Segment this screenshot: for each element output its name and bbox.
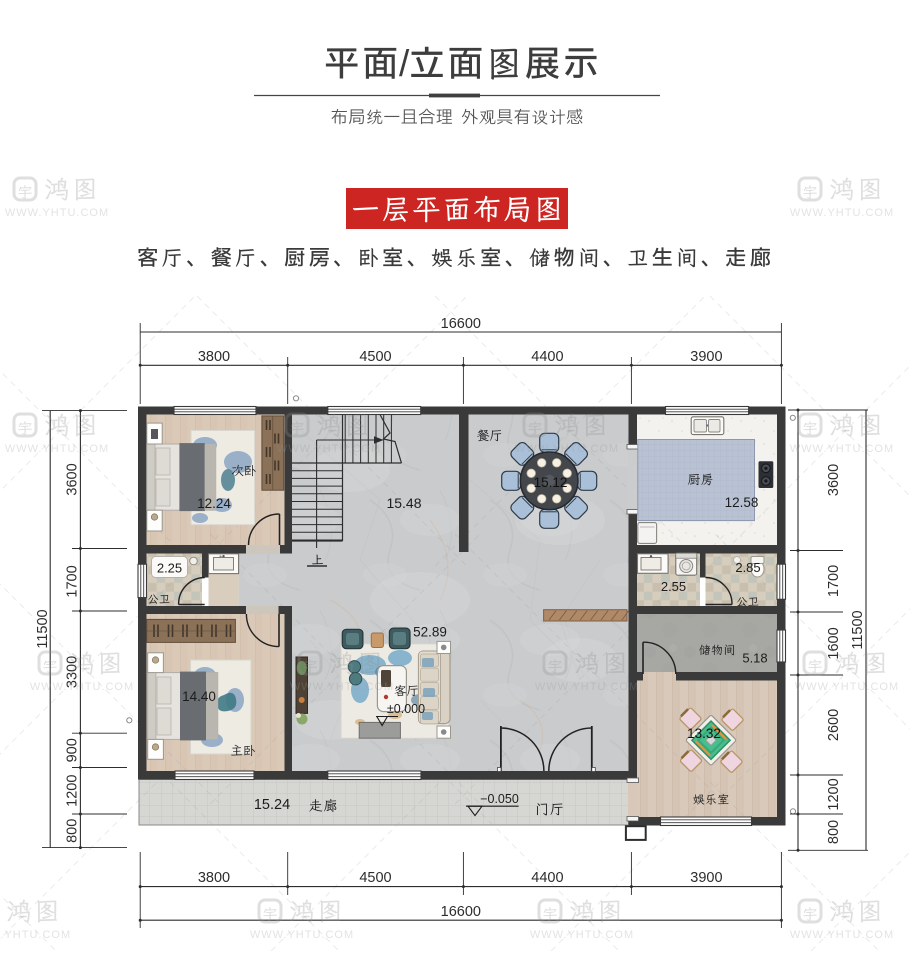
svg-text:5.18: 5.18 (742, 651, 767, 666)
svg-text:1700: 1700 (65, 565, 81, 597)
svg-text:3600: 3600 (65, 463, 81, 495)
svg-text:/: / (399, 43, 410, 84)
svg-text:WWW.YHTU.COM: WWW.YHTU.COM (250, 929, 354, 941)
svg-text:3900: 3900 (690, 349, 722, 365)
svg-text:13.32: 13.32 (687, 726, 721, 741)
svg-text:WWW.YHTU.COM: WWW.YHTU.COM (535, 681, 639, 693)
svg-text:4500: 4500 (359, 349, 391, 365)
svg-text:11500: 11500 (35, 609, 51, 648)
svg-text:WWW.YHTU.COM: WWW.YHTU.COM (790, 929, 894, 941)
svg-text:WWW.YHTU.COM: WWW.YHTU.COM (790, 207, 894, 219)
svg-text:±0.000: ±0.000 (387, 702, 425, 716)
svg-text:WWW.YHTU.COM: WWW.YHTU.COM (530, 929, 634, 941)
svg-text:14.40: 14.40 (182, 689, 216, 704)
svg-text:2.85: 2.85 (735, 560, 760, 575)
svg-text:11500: 11500 (850, 610, 866, 649)
svg-text:WWW.YHTU.COM: WWW.YHTU.COM (5, 207, 109, 219)
svg-text:−0.050: −0.050 (480, 792, 519, 806)
svg-text:WWW.YHTU.COM: WWW.YHTU.COM (30, 681, 134, 693)
svg-text:12.24: 12.24 (197, 496, 231, 511)
svg-text:900: 900 (65, 738, 81, 762)
svg-text:WWW.YHTU.COM: WWW.YHTU.COM (795, 681, 899, 693)
svg-text:15.24: 15.24 (254, 797, 290, 813)
svg-text:3800: 3800 (198, 349, 230, 365)
svg-text:2.25: 2.25 (157, 561, 182, 576)
svg-text:WWW.YHTU.COM: WWW.YHTU.COM (515, 443, 619, 455)
svg-text:4400: 4400 (531, 349, 563, 365)
svg-text:WWW.YHTU.COM: WWW.YHTU.COM (5, 443, 109, 455)
svg-text:WWW.YHTU.COM: WWW.YHTU.COM (290, 681, 394, 693)
svg-text:52.89: 52.89 (413, 625, 447, 640)
svg-text:2.55: 2.55 (661, 579, 686, 594)
svg-text:2600: 2600 (826, 709, 842, 741)
svg-text:16600: 16600 (441, 316, 481, 332)
svg-text:15.12: 15.12 (534, 475, 568, 490)
svg-text:1200: 1200 (65, 775, 81, 807)
svg-text:1200: 1200 (826, 778, 842, 810)
svg-text:WWW.YHTU.COM: WWW.YHTU.COM (0, 929, 71, 941)
svg-text:1700: 1700 (826, 565, 842, 597)
svg-text:WWW.YHTU.COM: WWW.YHTU.COM (277, 443, 381, 455)
svg-text:4400: 4400 (531, 870, 563, 886)
svg-text:3800: 3800 (198, 870, 230, 886)
svg-text:800: 800 (65, 819, 81, 843)
svg-text:WWW.YHTU.COM: WWW.YHTU.COM (790, 443, 894, 455)
svg-text:12.58: 12.58 (725, 495, 759, 510)
svg-text:16600: 16600 (441, 904, 481, 920)
svg-text:800: 800 (826, 820, 842, 844)
svg-text:3600: 3600 (826, 464, 842, 496)
svg-text:3900: 3900 (690, 870, 722, 886)
svg-text:15.48: 15.48 (386, 495, 421, 511)
svg-text:4500: 4500 (359, 870, 391, 886)
